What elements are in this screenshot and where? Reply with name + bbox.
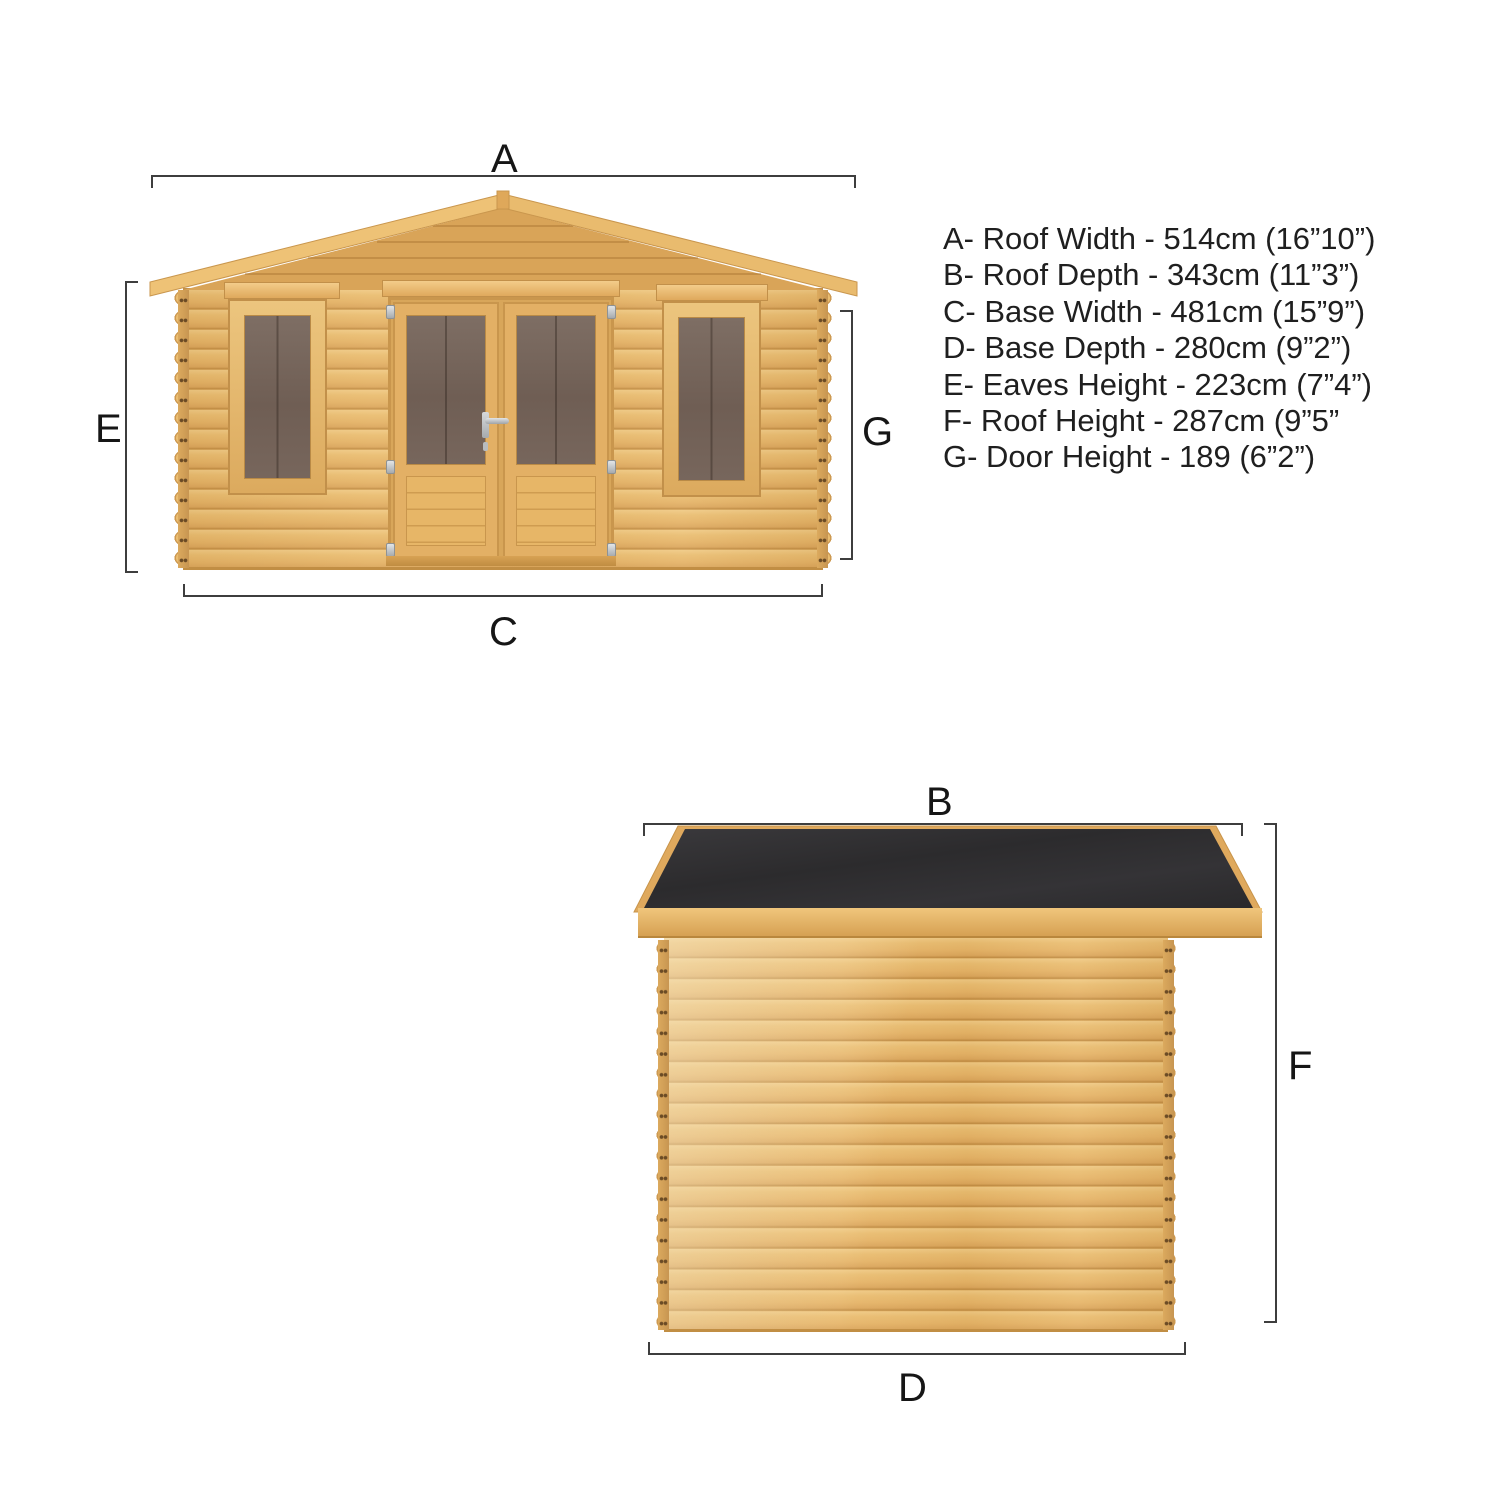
door-leaf-right — [503, 302, 609, 558]
front-wall-left-corner-trim — [178, 290, 189, 568]
front-gable — [183, 208, 823, 290]
door-left-glass — [406, 315, 486, 465]
left-window — [228, 299, 327, 495]
dim-label-door-height: G — [862, 412, 893, 452]
side-wall-right-corner-trim — [1163, 940, 1174, 1330]
side-wall-logs — [664, 938, 1168, 1332]
dim-line-roof-height — [1275, 823, 1277, 1323]
door-hinge-icon — [386, 543, 395, 557]
door-left-panel — [406, 476, 486, 546]
right-window-lintel — [656, 284, 768, 301]
door-hinge-icon — [386, 460, 395, 474]
legend-line-roof-height: F- Roof Height - 287cm (9”5” — [943, 403, 1375, 439]
side-wall — [644, 938, 1188, 1332]
legend-line-base-width: C- Base Width - 481cm (15”9”) — [943, 294, 1375, 330]
dim-line-eaves-height — [125, 281, 127, 573]
right-window — [662, 301, 761, 497]
dim-line-roof-width — [151, 175, 856, 177]
door-hinge-icon — [607, 543, 616, 557]
door-sill — [386, 556, 616, 566]
left-window-lintel — [224, 282, 340, 299]
double-door — [388, 297, 614, 563]
dim-line-door-height — [851, 310, 853, 560]
legend-line-door-height: G- Door Height - 189 (6”2”) — [943, 439, 1375, 475]
dim-label-base-depth: D — [898, 1368, 927, 1408]
dim-label-eaves-height: E — [95, 409, 122, 449]
side-roof-felt — [644, 829, 1253, 908]
right-window-glass — [678, 317, 745, 481]
door-handle-plate — [482, 412, 489, 438]
door-hinge-icon — [607, 460, 616, 474]
dim-label-roof-width: A — [491, 139, 518, 179]
front-roof-ridge-cap — [497, 191, 509, 209]
legend-line-roof-width: A- Roof Width - 514cm (16”10”) — [943, 221, 1375, 257]
dimension-legend: A- Roof Width - 514cm (16”10”) B- Roof D… — [943, 221, 1375, 476]
legend-line-eaves-height: E- Eaves Height - 223cm (7”4”) — [943, 367, 1375, 403]
door-handle-icon — [485, 418, 509, 424]
dim-label-roof-depth: B — [926, 782, 953, 822]
door-right-panel — [516, 476, 596, 546]
door-lintel — [382, 280, 620, 297]
dim-line-base-depth — [648, 1353, 1186, 1355]
dim-label-roof-height: F — [1288, 1046, 1312, 1086]
dim-line-base-width — [183, 595, 823, 597]
cabin-dimension-diagram: A — [0, 0, 1500, 1500]
door-right-glass — [516, 315, 596, 465]
dim-label-base-width: C — [489, 612, 518, 652]
door-hinge-icon — [386, 305, 395, 319]
side-roof-fascia — [638, 908, 1262, 938]
left-window-glass — [244, 315, 311, 479]
legend-line-base-depth: D- Base Depth - 280cm (9”2”) — [943, 330, 1375, 366]
side-wall-left-corner-trim — [658, 940, 669, 1330]
front-wall-right-corner-trim — [817, 290, 828, 568]
door-keyhole — [483, 442, 488, 451]
door-hinge-icon — [607, 305, 616, 319]
side-roof — [630, 820, 1290, 944]
legend-line-roof-depth: B- Roof Depth - 343cm (11”3”) — [943, 257, 1375, 293]
